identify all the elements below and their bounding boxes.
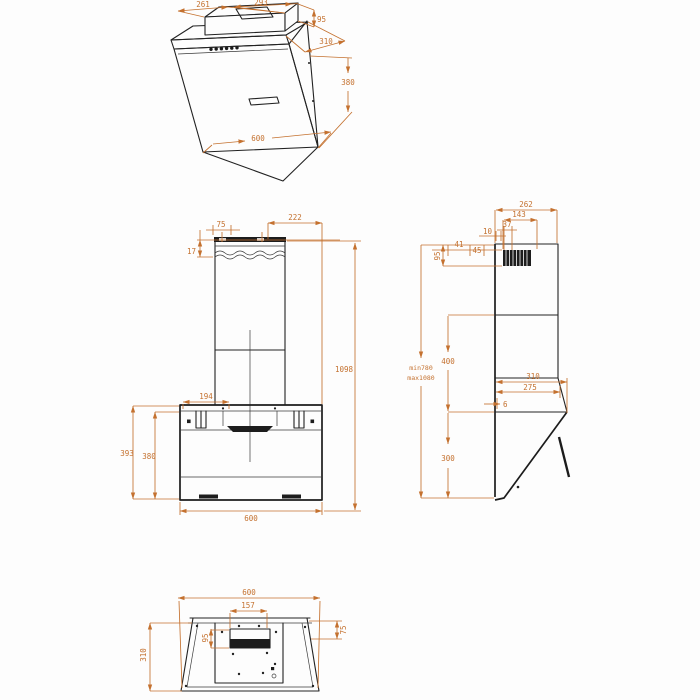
- technical-drawing-canvas: 261 293 95 310 380 600: [0, 0, 700, 700]
- side-dot: [517, 486, 520, 489]
- dim-262: 262: [519, 200, 533, 209]
- persp-dim-ext-380: [310, 56, 352, 148]
- dim-380-front: 380: [142, 452, 156, 461]
- dim-600-bottom: 600: [242, 588, 256, 597]
- side-dim-ext-400: [448, 315, 494, 412]
- dim-380-persp: 380: [341, 78, 355, 87]
- dim-1098: 1098: [335, 365, 354, 374]
- view-side: 262 143 37 10 41 45 95 min780 max1080 40…: [407, 200, 569, 500]
- dim-min780: min780: [409, 364, 433, 372]
- dim-393: 393: [120, 449, 134, 458]
- persp-side-screw-1: [308, 62, 310, 64]
- dim-10: 10: [483, 227, 493, 236]
- bottom-filter-opening: [230, 639, 270, 648]
- front-dim-ext-222: [268, 223, 322, 404]
- view-bottom: 600 157 95 75 310: [139, 588, 348, 691]
- dim-600-persp: 600: [251, 134, 265, 143]
- front-blower-shadow: [227, 426, 273, 432]
- side-dim-41-45-lines: [432, 245, 502, 256]
- dim-95-side: 95: [433, 251, 442, 260]
- dim-600-front: 600: [244, 514, 258, 523]
- persp-dim-line-600a: [213, 141, 245, 144]
- dim-max1080: max1080: [407, 374, 434, 382]
- front-break-wave: [215, 251, 285, 259]
- dim-37: 37: [502, 220, 511, 229]
- dim-194: 194: [199, 392, 213, 401]
- dim-400: 400: [441, 357, 455, 366]
- front-dot-left: [222, 407, 224, 409]
- dim-300: 300: [441, 454, 455, 463]
- front-screw-left: [187, 420, 191, 424]
- persp-side-panel: [289, 21, 318, 147]
- bottom-dim-ext-95: [211, 630, 229, 648]
- bottom-pin-circle: [272, 674, 276, 678]
- dim-45: 45: [472, 246, 481, 255]
- hood-dimension-drawing: 261 293 95 310 380 600: [0, 0, 700, 700]
- dim-310-persp: 310: [319, 37, 333, 46]
- dim-17: 17: [187, 247, 196, 256]
- dim-157: 157: [241, 601, 255, 610]
- dim-261: 261: [196, 0, 210, 9]
- dim-75-front: 75: [216, 220, 225, 229]
- front-dim-ext-1098: [287, 241, 361, 511]
- dim-6: 6: [503, 400, 508, 409]
- bottom-dim-ext-310: [150, 623, 192, 691]
- dim-41: 41: [454, 240, 463, 249]
- dim-95-bottom: 95: [201, 633, 210, 642]
- side-glass-profile: [495, 412, 567, 500]
- side-dim-37-lines: [497, 226, 517, 250]
- front-ref-lines-17: [197, 240, 340, 257]
- bottom-trapezoid-inner: [187, 623, 313, 687]
- persp-side-screw-2: [312, 100, 314, 102]
- side-deflector: [559, 437, 569, 477]
- front-lamp-left: [199, 495, 218, 499]
- view-perspective: 261 293 95 310 380 600: [171, 0, 355, 181]
- front-hook-right: [294, 411, 304, 428]
- bottom-dim-ext-157: [230, 613, 267, 628]
- persp-lamp-slot: [249, 97, 279, 105]
- side-outlet-hatch: [506, 250, 527, 266]
- dim-75-bottom: 75: [339, 625, 348, 634]
- front-screw-right: [311, 420, 315, 424]
- front-lamp-right: [282, 495, 301, 499]
- dim-310-side: 310: [526, 372, 540, 381]
- front-dot-right: [274, 407, 276, 409]
- dim-143: 143: [512, 210, 526, 219]
- view-front: 75 17 222 1098 194 393 380 600: [120, 213, 361, 523]
- dim-310-bottom: 310: [139, 648, 148, 662]
- dim-222: 222: [288, 213, 302, 222]
- dim-275: 275: [523, 383, 537, 392]
- persp-glass-top-line: [178, 49, 288, 54]
- front-hook-left: [196, 411, 206, 428]
- dim-293: 293: [254, 0, 268, 7]
- front-dim-ext-393-380: [133, 406, 179, 499]
- persp-dim-line-600b: [272, 132, 331, 138]
- persp-glass-bottom-tip: [203, 147, 318, 181]
- dim-95-persp: 95: [317, 15, 326, 24]
- bottom-pin-square: [271, 667, 274, 670]
